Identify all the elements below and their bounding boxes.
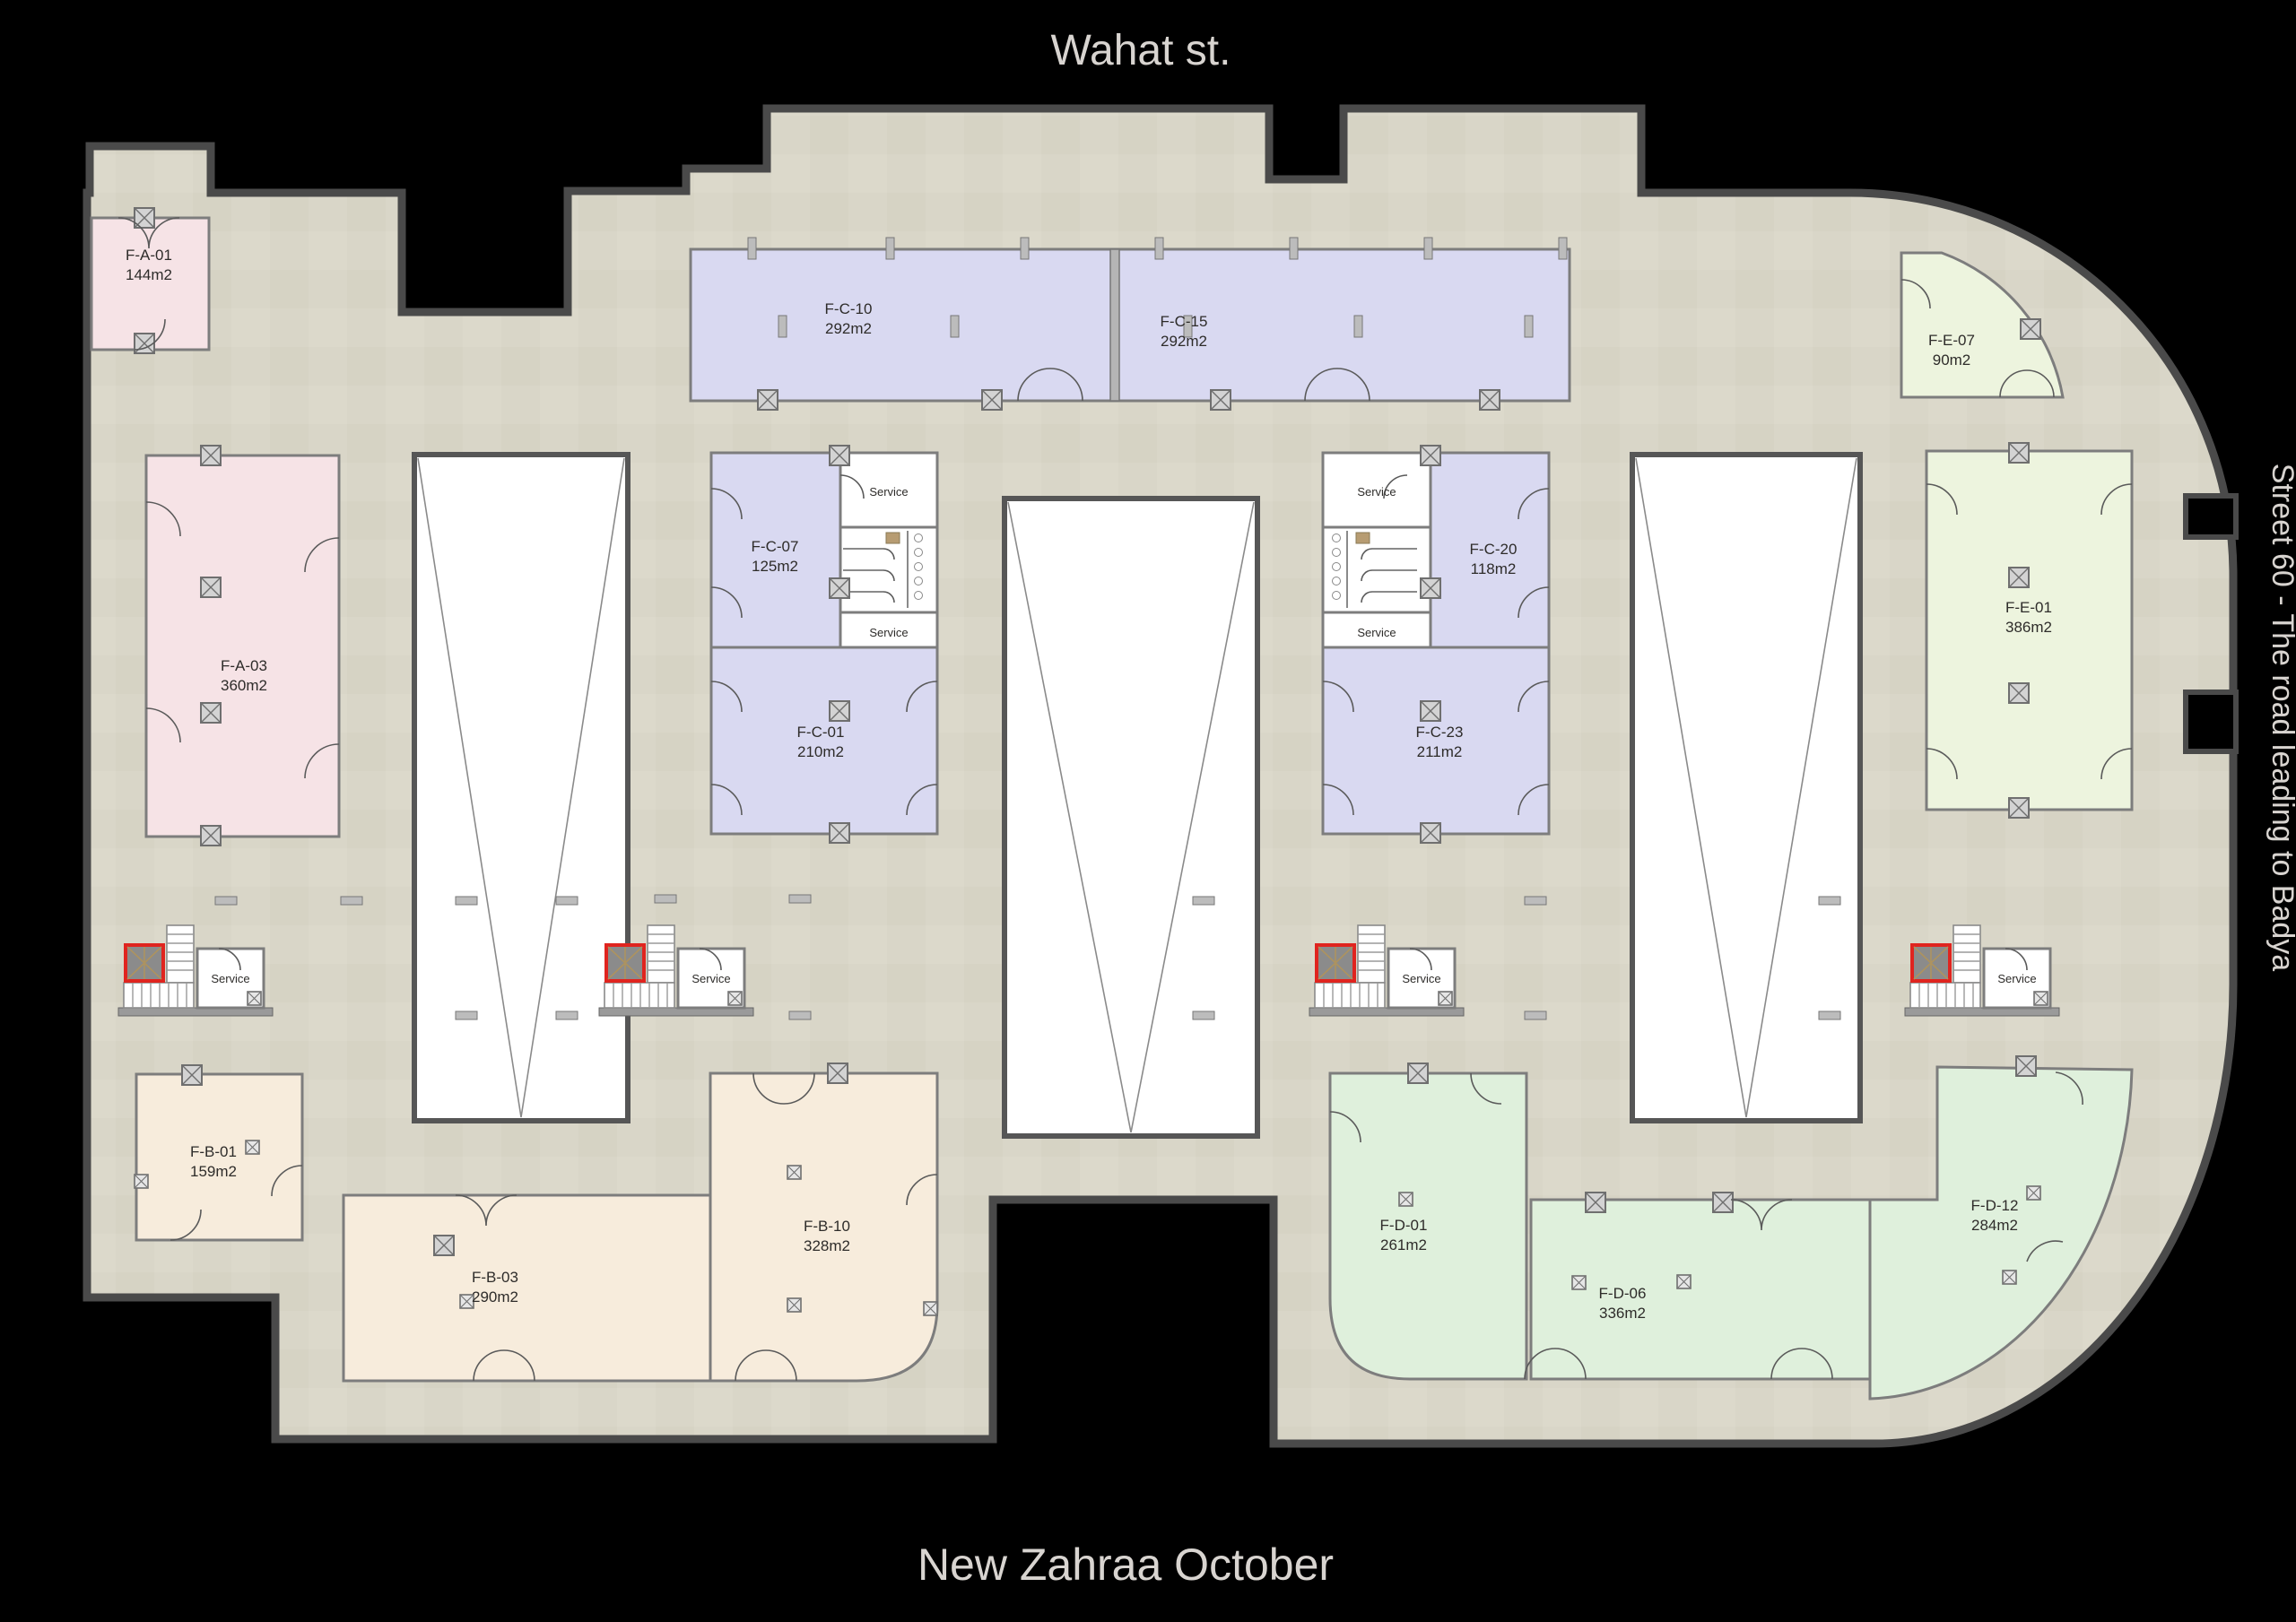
svg-text:Service: Service: [869, 626, 908, 639]
project-title-bottom: New Zahraa October: [918, 1540, 1334, 1590]
mop-sink: [1356, 533, 1370, 543]
void-right: [1632, 455, 1860, 1121]
facade-recess: [2186, 692, 2236, 751]
floor-plan-canvas: F-A-01144m2 F-A-03360m2 F-C-10292m2 F-C-…: [0, 0, 2296, 1622]
unit-divider-wall: [1110, 249, 1119, 401]
unit-f-c-23[interactable]: [1323, 647, 1549, 834]
svg-text:Service: Service: [869, 485, 908, 499]
void-center: [1004, 499, 1257, 1136]
floor-plan-page: F-A-01144m2 F-A-03360m2 F-C-10292m2 F-C-…: [0, 0, 2296, 1622]
svg-text:Service: Service: [1357, 485, 1396, 499]
svg-text:Service: Service: [1357, 626, 1396, 639]
facade-recess: [2186, 496, 2236, 537]
unit-f-b-03[interactable]: [344, 1195, 710, 1381]
svg-text:Service: Service: [1402, 972, 1440, 985]
void-left: [414, 455, 628, 1121]
svg-text:Service: Service: [691, 972, 730, 985]
svg-text:Service: Service: [1997, 972, 2036, 985]
street-title-top: Wahat st.: [1051, 27, 1231, 74]
unit-f-a-03[interactable]: [146, 455, 339, 837]
unit-f-c-01[interactable]: [711, 647, 937, 834]
street-title-right: Street 60 - The road leading to Badya: [2266, 464, 2296, 972]
unit-f-d-01[interactable]: [1330, 1073, 1526, 1379]
shaft-icon: [248, 992, 261, 1005]
mop-sink: [886, 533, 900, 543]
svg-text:Service: Service: [211, 972, 249, 985]
fire-elevator-icon: [126, 945, 163, 981]
unit-f-c-10[interactable]: [691, 249, 1115, 401]
